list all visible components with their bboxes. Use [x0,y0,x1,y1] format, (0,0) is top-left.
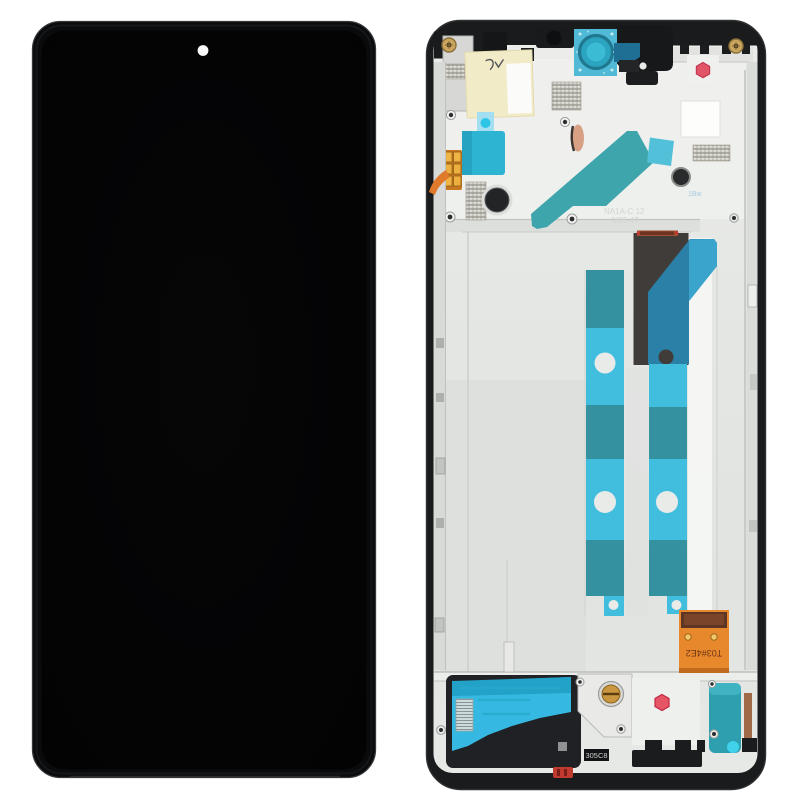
svg-text:305C8: 305C8 [585,751,607,760]
svg-text:M05 4T: M05 4T [612,216,639,225]
svg-text:NA1A-C 12: NA1A-C 12 [604,207,645,216]
svg-text:1Bw: 1Bw [688,191,703,198]
svg-text:T03#4E2: T03#4E2 [686,648,723,658]
